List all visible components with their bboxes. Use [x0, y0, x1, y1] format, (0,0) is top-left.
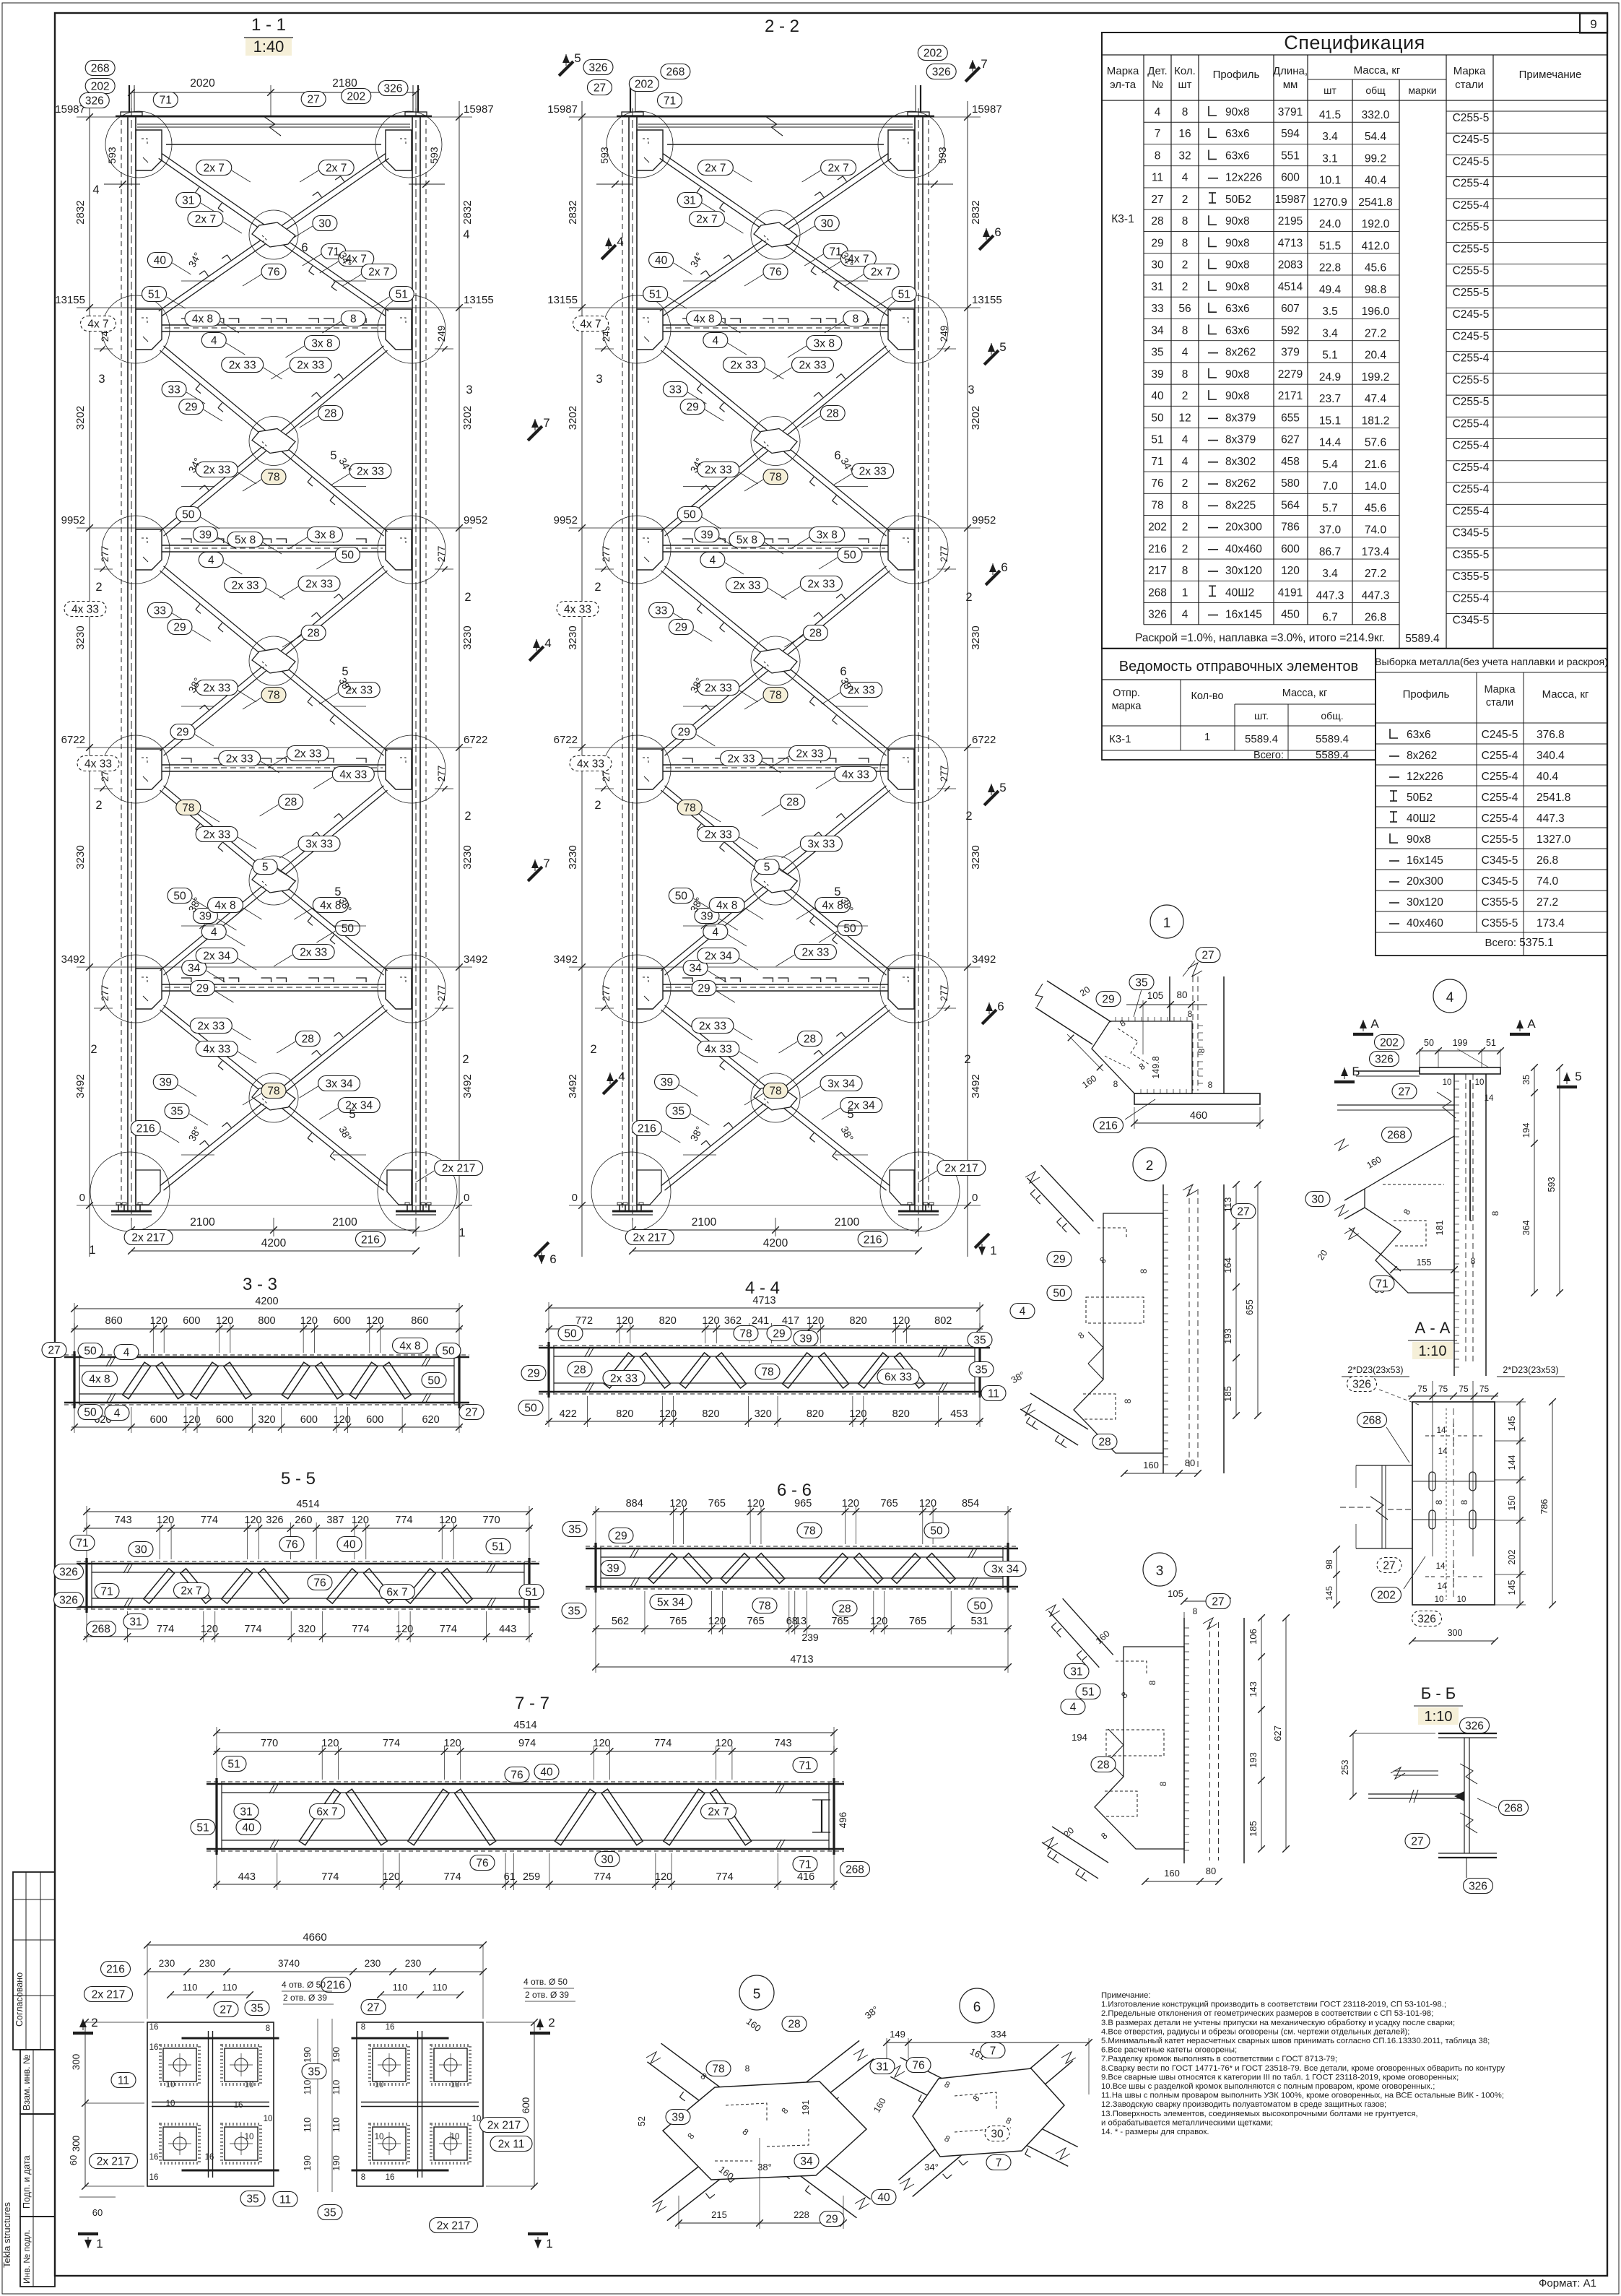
svg-text:3230: 3230	[567, 845, 579, 869]
svg-text:8x302: 8x302	[1225, 456, 1256, 468]
svg-text:2832: 2832	[74, 200, 87, 224]
svg-text:56: 56	[1178, 303, 1191, 315]
svg-text:6x 7: 6x 7	[386, 1586, 407, 1598]
svg-text:9952: 9952	[554, 514, 578, 527]
svg-text:54.4: 54.4	[1365, 131, 1387, 143]
svg-text:268: 268	[666, 66, 685, 78]
svg-text:6x 7: 6x 7	[316, 1806, 337, 1818]
svg-text:12.Заводскую сварку производит: 12.Заводскую сварку производить полуавто…	[1101, 2100, 1386, 2109]
svg-text:3.1: 3.1	[1322, 152, 1338, 165]
svg-text:марка: марка	[1112, 701, 1142, 712]
svg-text:35: 35	[251, 2002, 263, 2014]
svg-text:326: 326	[1352, 1378, 1371, 1390]
svg-text:326: 326	[1417, 1613, 1436, 1625]
svg-text:217: 217	[1148, 565, 1167, 577]
svg-text:4: 4	[617, 235, 623, 248]
svg-text:2: 2	[1182, 477, 1188, 490]
svg-text:562: 562	[612, 1616, 629, 1627]
svg-text:51: 51	[1151, 434, 1163, 446]
svg-text:326: 326	[1465, 1720, 1484, 1732]
svg-text:8x262: 8x262	[1407, 750, 1437, 762]
svg-text:145: 145	[1507, 1416, 1517, 1431]
svg-text:12x226: 12x226	[1407, 771, 1443, 783]
svg-text:277: 277	[939, 985, 949, 1002]
svg-text:202: 202	[1148, 521, 1167, 534]
svg-text:5: 5	[1575, 1070, 1581, 1083]
svg-text:3230: 3230	[74, 845, 87, 869]
svg-text:2 - 2: 2 - 2	[765, 17, 799, 36]
svg-text:50: 50	[182, 508, 195, 521]
svg-text:820: 820	[616, 1408, 633, 1420]
svg-text:2100: 2100	[332, 1216, 357, 1229]
svg-text:4x 33: 4x 33	[339, 768, 367, 781]
svg-text:417: 417	[782, 1315, 799, 1327]
svg-text:С245-5: С245-5	[1453, 308, 1490, 321]
svg-text:С255-5: С255-5	[1482, 833, 1518, 846]
svg-text:35: 35	[975, 1364, 987, 1376]
svg-text:Примечание: Примечание	[1519, 69, 1582, 81]
svg-text:2x 33: 2x 33	[357, 465, 384, 477]
svg-text:эл-та: эл-та	[1110, 79, 1137, 91]
svg-text:50: 50	[675, 890, 688, 902]
svg-text:3: 3	[98, 373, 105, 386]
svg-text:774: 774	[383, 1738, 400, 1749]
svg-text:30: 30	[1151, 259, 1164, 272]
svg-text:4: 4	[1155, 106, 1161, 118]
svg-text:63x6: 63x6	[1225, 324, 1250, 337]
svg-text:27: 27	[1411, 1835, 1423, 1847]
svg-text:14: 14	[1438, 1447, 1448, 1456]
svg-text:376.8: 376.8	[1537, 729, 1565, 741]
svg-text:78: 78	[769, 471, 781, 483]
svg-text:60: 60	[68, 2155, 79, 2165]
svg-text:С255-5: С255-5	[1453, 287, 1490, 299]
svg-text:29: 29	[614, 1530, 627, 1542]
svg-text:50: 50	[524, 1402, 537, 1414]
svg-text:774: 774	[716, 1871, 734, 1883]
svg-text:27: 27	[1237, 1205, 1249, 1218]
svg-text:2x 33: 2x 33	[705, 828, 732, 841]
svg-text:2x 33: 2x 33	[294, 748, 321, 760]
svg-text:8: 8	[350, 313, 357, 325]
svg-text:40: 40	[1151, 390, 1164, 402]
svg-text:20x300: 20x300	[1225, 521, 1262, 534]
svg-text:2x 7: 2x 7	[827, 162, 848, 174]
svg-text:2x 33: 2x 33	[203, 828, 230, 841]
svg-text:39: 39	[672, 2111, 684, 2123]
svg-text:33: 33	[669, 384, 682, 396]
svg-text:16x145: 16x145	[1225, 609, 1262, 621]
svg-text:5: 5	[330, 449, 336, 462]
svg-text:2x 33: 2x 33	[699, 1020, 726, 1032]
svg-text:31: 31	[240, 1806, 252, 1818]
svg-text:320: 320	[755, 1408, 772, 1420]
svg-text:120: 120	[616, 1315, 633, 1327]
svg-text:3: 3	[1156, 1564, 1164, 1579]
svg-text:4: 4	[713, 334, 719, 347]
svg-text:8.Сварку вести по ГОСТ 14771-7: 8.Сварку вести по ГОСТ 14771-76* и ГОСТ …	[1101, 2064, 1505, 2073]
svg-text:4: 4	[208, 554, 214, 566]
svg-text:50: 50	[930, 1525, 943, 1537]
svg-text:30: 30	[134, 1543, 147, 1556]
svg-text:120: 120	[366, 1315, 383, 1327]
svg-text:С255-4: С255-4	[1453, 440, 1490, 452]
svg-text:150: 150	[1507, 1496, 1517, 1511]
svg-text:2x 7: 2x 7	[326, 162, 347, 174]
svg-text:3202: 3202	[567, 406, 579, 430]
svg-text:4: 4	[1070, 1701, 1077, 1713]
svg-text:0: 0	[79, 1192, 85, 1204]
svg-text:78: 78	[739, 1327, 752, 1340]
svg-text:8x262: 8x262	[1225, 477, 1256, 490]
svg-text:6: 6	[301, 241, 308, 254]
svg-text:10: 10	[264, 2115, 273, 2123]
svg-text:10: 10	[166, 2081, 175, 2089]
svg-text:50: 50	[843, 549, 856, 561]
svg-text:27: 27	[594, 82, 606, 94]
svg-text:13: 13	[795, 1616, 807, 1627]
svg-text:594: 594	[1281, 128, 1300, 140]
svg-text:90x8: 90x8	[1225, 215, 1250, 228]
svg-text:185: 185	[1222, 1386, 1233, 1402]
svg-text:34: 34	[689, 962, 702, 974]
svg-text:4: 4	[1182, 347, 1188, 359]
svg-text:8: 8	[1182, 368, 1188, 381]
svg-text:300: 300	[1448, 1628, 1463, 1638]
svg-text:33: 33	[168, 384, 180, 396]
svg-text:320: 320	[258, 1414, 275, 1426]
svg-text:С255-5: С255-5	[1453, 221, 1490, 233]
svg-text:15987: 15987	[464, 103, 494, 116]
svg-text:Марка: Марка	[1484, 684, 1516, 696]
svg-text:16x145: 16x145	[1407, 854, 1443, 867]
svg-text:4713: 4713	[790, 1654, 813, 1665]
svg-text:2x 7: 2x 7	[708, 1806, 729, 1818]
svg-text:6: 6	[840, 665, 846, 678]
svg-text:7: 7	[996, 2157, 1002, 2169]
svg-text:4: 4	[1446, 990, 1454, 1005]
svg-text:С245-5: С245-5	[1453, 330, 1490, 342]
svg-text:50Б2: 50Б2	[1225, 194, 1251, 206]
svg-text:2x 7: 2x 7	[181, 1585, 201, 1597]
svg-text:39: 39	[160, 1076, 172, 1088]
svg-text:2x 7: 2x 7	[195, 213, 216, 225]
svg-text:8: 8	[1139, 1268, 1149, 1273]
svg-text:120: 120	[669, 1498, 687, 1509]
svg-text:447.3: 447.3	[1362, 589, 1390, 602]
svg-text:Tekla structures: Tekla structures	[1, 2201, 12, 2268]
svg-text:16: 16	[386, 2173, 395, 2182]
svg-text:2x 217: 2x 217	[97, 2155, 131, 2167]
svg-text:51.5: 51.5	[1319, 240, 1341, 252]
svg-text:277: 277	[100, 985, 110, 1002]
svg-text:1: 1	[1163, 916, 1171, 931]
svg-text:стали: стали	[1486, 697, 1513, 709]
svg-text:63x6: 63x6	[1225, 150, 1250, 162]
svg-text:2x 33: 2x 33	[733, 579, 760, 592]
svg-text:Выборка металла(без учета напл: Выборка металла(без учета наплавки и рас…	[1375, 657, 1608, 668]
svg-text:10: 10	[375, 2081, 384, 2089]
svg-text:А: А	[1370, 1017, 1379, 1031]
svg-text:120: 120	[708, 1616, 726, 1627]
svg-text:Раскрой =1.0%, наплавка =3.0%,: Раскрой =1.0%, наплавка =3.0%, итого =21…	[1135, 632, 1385, 644]
svg-text:С255-4: С255-4	[1453, 178, 1490, 190]
svg-text:8: 8	[1182, 499, 1188, 511]
svg-text:стали: стали	[1455, 79, 1484, 91]
svg-text:239: 239	[801, 1632, 819, 1643]
svg-text:98.8: 98.8	[1365, 284, 1386, 296]
svg-text:2x 33: 2x 33	[305, 578, 333, 590]
svg-text:4: 4	[1020, 1305, 1026, 1317]
svg-text:27.2: 27.2	[1537, 896, 1558, 909]
svg-text:2.Предельные отклонения от гео: 2.Предельные отклонения от геометрически…	[1101, 2009, 1433, 2018]
svg-text:40: 40	[655, 254, 668, 267]
svg-text:4x 8: 4x 8	[89, 1373, 110, 1385]
svg-text:120: 120	[244, 1515, 261, 1526]
svg-text:1270.9: 1270.9	[1313, 196, 1347, 209]
svg-text:6722: 6722	[554, 734, 578, 746]
svg-text:4: 4	[1182, 456, 1188, 468]
svg-text:0: 0	[464, 1192, 469, 1204]
svg-text:655: 655	[1244, 1299, 1255, 1315]
svg-text:2171: 2171	[1278, 390, 1303, 402]
svg-text:2180: 2180	[332, 77, 357, 90]
svg-text:2x 33: 2x 33	[203, 682, 230, 694]
svg-text:120: 120	[444, 1738, 461, 1749]
svg-text:193: 193	[1222, 1328, 1233, 1344]
svg-text:2x 33: 2x 33	[297, 359, 324, 371]
svg-text:202: 202	[347, 90, 365, 103]
svg-text:78: 78	[267, 471, 279, 483]
svg-text:99.2: 99.2	[1365, 152, 1386, 165]
svg-text:С255-4: С255-4	[1482, 813, 1518, 825]
svg-text:593: 593	[1547, 1177, 1557, 1192]
svg-text:364: 364	[1521, 1221, 1531, 1236]
svg-text:326: 326	[932, 66, 951, 78]
svg-text:149.8: 149.8	[1151, 1056, 1161, 1078]
svg-text:Масса, кг: Масса, кг	[1542, 688, 1589, 701]
svg-text:10: 10	[1475, 1078, 1485, 1087]
svg-text:2x 217: 2x 217	[131, 1231, 165, 1244]
svg-text:3230: 3230	[567, 625, 579, 649]
svg-text:7.Разделку кромок выполнять в: 7.Разделку кромок выполнять в соответств…	[1101, 2055, 1337, 2063]
svg-text:40x460: 40x460	[1225, 543, 1262, 555]
svg-text:39: 39	[607, 1562, 619, 1574]
svg-text:770: 770	[482, 1515, 500, 1526]
svg-text:8: 8	[1158, 1781, 1168, 1786]
svg-text:181: 181	[1435, 1221, 1445, 1236]
svg-text:А: А	[1527, 1017, 1536, 1031]
svg-text:40: 40	[877, 2191, 890, 2204]
svg-text:14.4: 14.4	[1319, 437, 1342, 449]
svg-text:7 - 7: 7 - 7	[515, 1694, 549, 1713]
svg-text:78: 78	[769, 689, 781, 701]
svg-text:5: 5	[262, 861, 269, 873]
svg-text:4: 4	[618, 1070, 625, 1083]
svg-text:28: 28	[302, 1033, 314, 1045]
svg-text:820: 820	[892, 1408, 910, 1420]
svg-text:5: 5	[574, 51, 581, 65]
svg-text:11.На швы с полным проваром вы: 11.На швы с полным проваром выполнить УЗ…	[1101, 2092, 1504, 2100]
svg-text:2x 33: 2x 33	[859, 465, 887, 477]
svg-text:326: 326	[85, 95, 104, 107]
svg-text:10: 10	[375, 2133, 384, 2141]
svg-text:27: 27	[220, 2003, 232, 2016]
svg-text:4: 4	[211, 926, 217, 938]
svg-text:5x 8: 5x 8	[235, 534, 256, 546]
svg-text:202: 202	[1377, 1589, 1396, 1601]
svg-text:120: 120	[842, 1498, 859, 1509]
svg-text:29: 29	[697, 982, 710, 995]
svg-text:2541.8: 2541.8	[1537, 792, 1570, 804]
svg-text:216: 216	[638, 1122, 656, 1135]
svg-text:10.Все швы с разделкой кромок: 10.Все швы с разделкой кромок выполняютс…	[1101, 2082, 1435, 2091]
svg-text:10: 10	[245, 2133, 254, 2141]
svg-text:27: 27	[1212, 1595, 1224, 1608]
svg-text:63x6: 63x6	[1407, 729, 1431, 741]
svg-text:593: 593	[428, 147, 440, 164]
svg-text:29: 29	[527, 1367, 539, 1379]
svg-text:4: 4	[114, 1407, 121, 1419]
svg-text:78: 78	[761, 1366, 773, 1378]
svg-text:230: 230	[159, 1958, 175, 1969]
svg-text:27.2: 27.2	[1365, 327, 1386, 339]
svg-text:4191: 4191	[1278, 586, 1303, 599]
svg-text:5: 5	[334, 885, 341, 898]
svg-text:160: 160	[1143, 1460, 1159, 1470]
svg-text:30: 30	[991, 2128, 1004, 2140]
svg-text:34: 34	[800, 2155, 813, 2167]
svg-text:75: 75	[1438, 1384, 1448, 1394]
svg-text:2x 7: 2x 7	[696, 213, 717, 225]
svg-text:общ.: общ.	[1321, 710, 1343, 722]
svg-text:7: 7	[990, 2045, 996, 2057]
svg-text:90x8: 90x8	[1225, 237, 1250, 249]
svg-text:277: 277	[436, 766, 447, 782]
svg-text:50: 50	[684, 508, 697, 521]
svg-text:5: 5	[834, 885, 840, 898]
svg-text:3: 3	[968, 384, 974, 397]
svg-text:106: 106	[1248, 1629, 1259, 1645]
svg-text:4x 8: 4x 8	[192, 313, 213, 325]
svg-text:31: 31	[1151, 281, 1163, 293]
svg-text:854: 854	[962, 1498, 979, 1509]
svg-text:600: 600	[150, 1414, 168, 1426]
svg-text:194: 194	[1521, 1123, 1531, 1138]
svg-text:50Б2: 50Б2	[1407, 792, 1433, 804]
svg-text:71: 71	[664, 95, 676, 107]
svg-text:29: 29	[675, 621, 687, 633]
svg-text:76: 76	[267, 266, 279, 278]
svg-text:4x 33: 4x 33	[71, 603, 99, 615]
svg-text:3740: 3740	[278, 1958, 300, 1969]
svg-text:860: 860	[411, 1315, 428, 1327]
svg-text:5.Минимальный катет нерасчетны: 5.Минимальный катет нерасчетных сварных …	[1101, 2037, 1490, 2045]
svg-text:15987: 15987	[547, 103, 578, 116]
svg-text:40Ш2: 40Ш2	[1407, 813, 1435, 825]
svg-text:450: 450	[1281, 609, 1300, 621]
svg-text:120: 120	[334, 1414, 351, 1426]
svg-text:2x 33: 2x 33	[203, 464, 230, 476]
svg-text:2: 2	[548, 2016, 555, 2029]
svg-text:259: 259	[523, 1871, 540, 1883]
svg-text:5: 5	[753, 1987, 761, 2002]
svg-text:965: 965	[794, 1498, 812, 1509]
svg-text:51: 51	[492, 1541, 504, 1553]
svg-text:4200: 4200	[255, 1296, 278, 1307]
svg-text:2x 33: 2x 33	[610, 1372, 638, 1385]
svg-text:326: 326	[59, 1594, 78, 1606]
svg-text:27: 27	[308, 93, 320, 105]
svg-text:627: 627	[1272, 1725, 1283, 1741]
svg-text:28: 28	[809, 627, 822, 639]
svg-text:120: 120	[716, 1738, 733, 1749]
svg-text:15.1: 15.1	[1319, 415, 1341, 427]
svg-text:743: 743	[774, 1738, 791, 1749]
svg-text:5: 5	[999, 340, 1006, 354]
svg-text:39: 39	[661, 1076, 673, 1088]
svg-text:4x 8: 4x 8	[693, 313, 714, 325]
svg-text:268: 268	[1363, 1414, 1381, 1426]
svg-text:5: 5	[764, 861, 770, 873]
svg-text:743: 743	[114, 1515, 131, 1526]
svg-text:765: 765	[880, 1498, 898, 1509]
svg-text:2: 2	[95, 799, 102, 812]
svg-text:300: 300	[71, 2136, 82, 2152]
svg-text:9: 9	[1590, 17, 1596, 31]
svg-text:71: 71	[100, 1585, 113, 1598]
svg-text:765: 765	[708, 1498, 726, 1509]
svg-text:32: 32	[1178, 150, 1191, 162]
svg-text:14. * - размеры для справок.: 14. * - размеры для справок.	[1101, 2128, 1209, 2136]
svg-text:1: 1	[96, 2237, 103, 2250]
svg-text:4 отв. Ø 50: 4 отв. Ø 50	[523, 1977, 568, 1987]
svg-text:78: 78	[712, 2063, 724, 2075]
svg-text:1327.0: 1327.0	[1537, 833, 1571, 846]
svg-text:35: 35	[1135, 976, 1147, 989]
svg-text:120: 120	[183, 1414, 200, 1426]
svg-text:120: 120	[655, 1871, 672, 1883]
svg-text:37.0: 37.0	[1319, 524, 1342, 537]
svg-text:90x8: 90x8	[1225, 390, 1250, 402]
svg-text:С255-4: С255-4	[1482, 771, 1518, 783]
svg-text:7: 7	[981, 57, 987, 71]
svg-text:458: 458	[1281, 456, 1300, 468]
svg-text:С345-5: С345-5	[1482, 854, 1518, 867]
svg-text:2x 33: 2x 33	[730, 359, 757, 371]
svg-text:11: 11	[1152, 172, 1163, 184]
svg-text:50: 50	[442, 1345, 455, 1357]
svg-text:4200: 4200	[763, 1237, 788, 1249]
svg-text:4: 4	[710, 554, 716, 566]
svg-text:75: 75	[1479, 1384, 1490, 1394]
svg-text:2x 33: 2x 33	[799, 359, 827, 371]
svg-text:3492: 3492	[74, 1074, 87, 1098]
svg-text:27: 27	[465, 1406, 477, 1418]
svg-text:2083: 2083	[1278, 259, 1303, 272]
svg-text:2*D23(23x53): 2*D23(23x53)	[1503, 1365, 1558, 1375]
svg-text:2x 217: 2x 217	[944, 1162, 978, 1174]
svg-text:24.0: 24.0	[1319, 218, 1342, 230]
svg-text:78: 78	[267, 689, 279, 701]
svg-text:30: 30	[1311, 1193, 1324, 1205]
svg-text:28: 28	[786, 796, 799, 808]
svg-text:С255-4: С255-4	[1453, 352, 1490, 365]
svg-text:26.8: 26.8	[1537, 854, 1558, 867]
svg-text:7: 7	[543, 416, 549, 430]
svg-text:2: 2	[464, 810, 471, 823]
svg-text:268: 268	[91, 62, 110, 74]
